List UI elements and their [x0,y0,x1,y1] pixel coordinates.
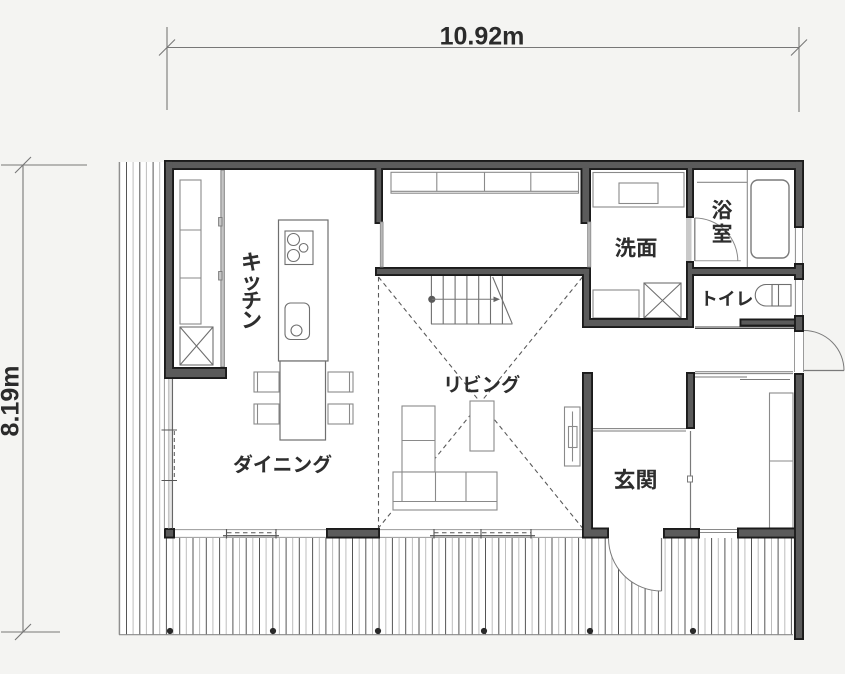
svg-text:10.92m: 10.92m [440,23,525,51]
svg-text:8.19m: 8.19m [0,366,25,437]
